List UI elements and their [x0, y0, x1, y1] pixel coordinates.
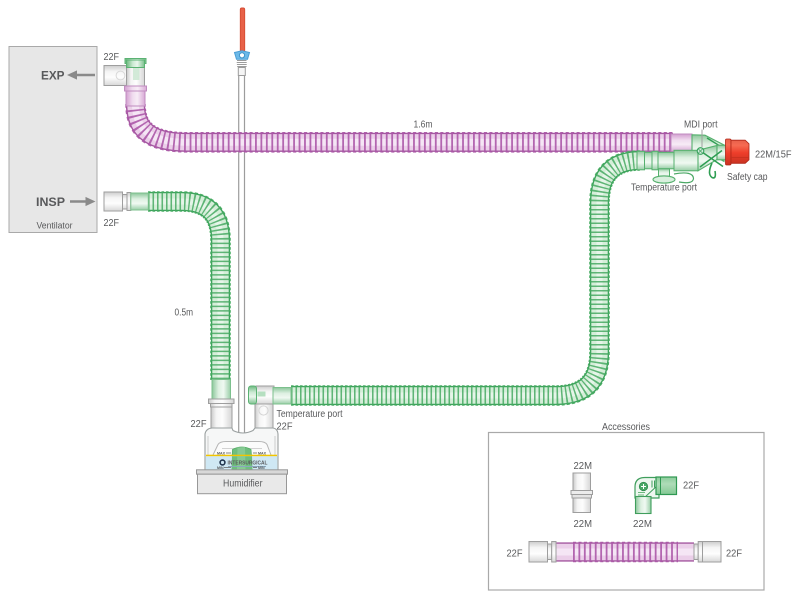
svg-text:1.6m: 1.6m [414, 120, 433, 131]
svg-text:Ventilator: Ventilator [37, 221, 73, 231]
svg-text:INSP: INSP [36, 195, 65, 209]
svg-text:22M/15F: 22M/15F [755, 150, 792, 161]
svg-text:Safety cap: Safety cap [727, 172, 768, 183]
svg-text:22F: 22F [507, 549, 523, 560]
svg-text:22F: 22F [191, 419, 207, 430]
svg-text:22F: 22F [104, 218, 120, 229]
svg-text:Humidifier: Humidifier [223, 479, 263, 490]
svg-text:22F: 22F [104, 52, 120, 63]
svg-text:EXP: EXP [41, 69, 65, 83]
svg-text:22F: 22F [726, 549, 742, 560]
svg-text:Temperature port: Temperature port [631, 183, 697, 194]
svg-text:22M: 22M [574, 461, 593, 472]
svg-text:22F: 22F [277, 422, 293, 433]
svg-text:MDI port: MDI port [684, 120, 718, 131]
svg-text:Accessories: Accessories [602, 422, 650, 433]
svg-text:22M: 22M [574, 519, 593, 530]
svg-text:0.5m: 0.5m [175, 308, 194, 319]
svg-text:22M: 22M [633, 519, 652, 530]
svg-text:22F: 22F [683, 481, 699, 492]
svg-text:Temperature port: Temperature port [277, 409, 343, 420]
